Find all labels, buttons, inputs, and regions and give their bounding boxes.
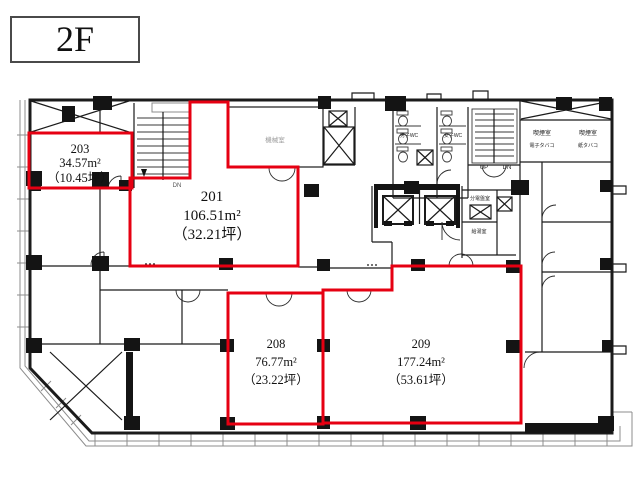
structural-columns [26,96,614,431]
womens-wc-label: 女子WC [444,132,463,139]
room-209-label: 209 177.24m² （53.61坪） [388,337,454,387]
smoking-room-paper-label-1: 喫煙室 [579,129,597,137]
x-brace-chamfer [50,352,122,420]
walkway-ticks [95,433,607,446]
room-203-area: 34.57m² [59,156,101,170]
room-201-label: 201 106.51m² （32.21坪） [173,189,252,243]
stairs-dn-label: DN [503,165,512,171]
left-staircase-icon: DN [137,103,189,189]
smoking-room-ecig-label-2: 電子タバコ [529,142,554,149]
x-brace-top-left [31,101,129,132]
smoking-room-ecig-label-1: 喫煙室 [533,129,551,137]
stairs-left-dn-label: DN [173,183,182,189]
utility-labels: 喫煙室 電子タバコ 喫煙室 紙タバコ 分電盤室 給湯室 機械室 [265,129,598,235]
room-203-label: 203 34.57m² （10.45坪） [47,142,113,185]
room-201-tsubo: （32.21坪） [173,226,252,243]
kitchenette-label: 給湯室 [471,228,486,235]
floorplan-canvas: 2F [0,0,640,480]
room-203-number: 203 [71,142,90,156]
elevator-1-icon [383,196,413,226]
panel-room-label: 分電盤室 [470,195,490,202]
floor-title: 2F [56,19,94,59]
machine-room-label: 機械室 [265,135,285,144]
room-201-number: 201 [201,189,224,205]
room-208-tsubo: （23.22坪） [243,373,309,387]
window-tabs [612,186,626,354]
room-209-number: 209 [412,337,431,351]
mens-wc-label: 男子WC [400,132,419,139]
room-208-area: 76.77m² [255,355,297,369]
room-201-area: 106.51m² [183,208,241,224]
room-209-area: 177.24m² [397,355,445,369]
room-209-tsubo: （53.61坪） [388,373,454,387]
floor-title-box: 2F [11,17,139,62]
room-208-number: 208 [267,337,286,351]
smoking-room-paper-label-2: 紙タバコ [578,142,598,149]
interior-walls [30,100,612,352]
right-staircase-icon: UP DN [472,109,517,171]
room-203-tsubo: （10.45坪） [47,171,113,185]
elevator-2-icon [425,196,455,226]
room-208-label: 208 76.77m² （23.22坪） [243,337,309,387]
stairs-up-label: UP [480,165,488,171]
toilets: 男子WC 女子WC [395,111,466,162]
